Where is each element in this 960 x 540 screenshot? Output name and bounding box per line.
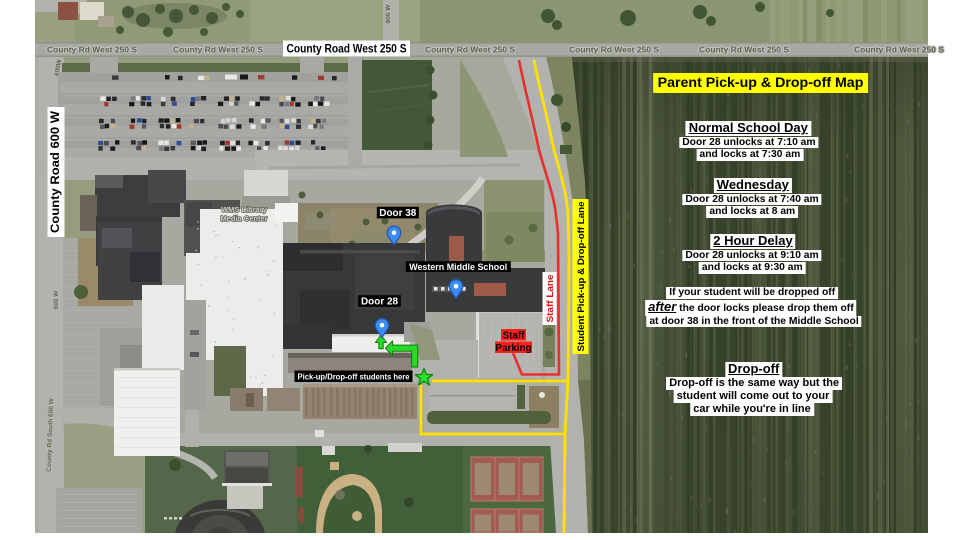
svg-text:Door 28: Door 28 — [361, 297, 398, 308]
svg-text:Western Middle School: Western Middle School — [409, 262, 507, 273]
svg-text:WMS Library: WMS Library — [221, 205, 268, 214]
svg-text:County Rd West 250 S: County Rd West 250 S — [47, 45, 137, 54]
svg-text:County Rd West 250 S: County Rd West 250 S — [854, 45, 944, 54]
svg-text:Staff: Staff — [503, 331, 526, 342]
svg-text:Staff Lane: Staff Lane — [545, 275, 555, 323]
svg-text:Pick-up/Drop-off students here: Pick-up/Drop-off students here — [298, 372, 410, 382]
svg-text:Door 38: Door 38 — [379, 208, 416, 219]
svg-text:County Rd West 250 S: County Rd West 250 S — [173, 45, 263, 54]
svg-text:Parking: Parking — [496, 343, 532, 354]
svg-text:County Rd West 250 S: County Rd West 250 S — [425, 45, 515, 54]
svg-text:600 W: 600 W — [53, 290, 60, 310]
svg-text:County Road 600 W: County Road 600 W — [50, 111, 62, 233]
svg-text:Media Center: Media Center — [220, 214, 267, 223]
svg-text:County Road West 250 S: County Road West 250 S — [287, 44, 407, 56]
svg-text:600 W: 600 W — [385, 4, 392, 24]
svg-text:County Rd West 250 S: County Rd West 250 S — [569, 45, 659, 54]
svg-text:Student Pick-up & Drop-off Lan: Student Pick-up & Drop-off Lane — [576, 202, 587, 352]
svg-text:County Rd West 250 S: County Rd West 250 S — [699, 45, 789, 54]
